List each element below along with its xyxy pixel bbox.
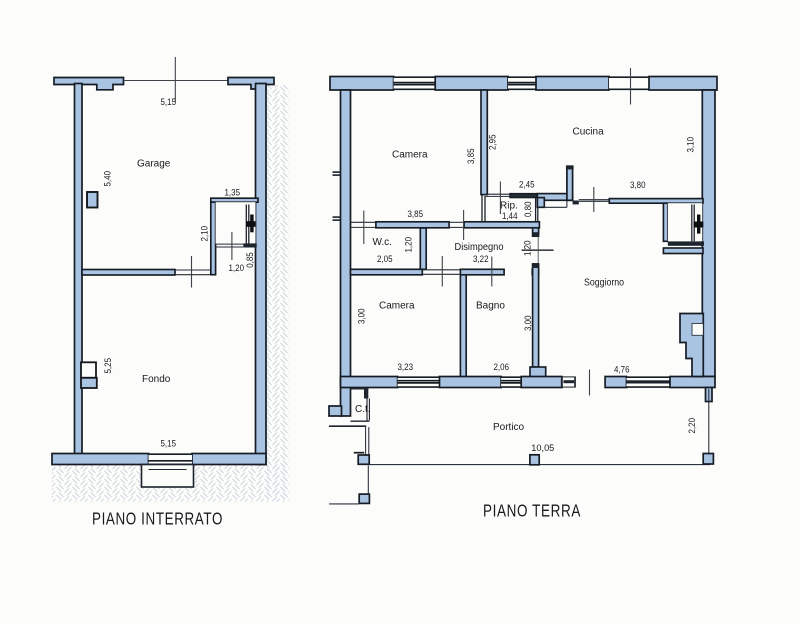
svg-text:2,95: 2,95 <box>488 135 499 151</box>
svg-text:2,10: 2,10 <box>200 226 211 242</box>
svg-text:3,00: 3,00 <box>357 309 368 325</box>
svg-text:PIANO INTERRATO: PIANO INTERRATO <box>92 509 223 529</box>
svg-text:Camera: Camera <box>379 301 415 312</box>
svg-text:5,15: 5,15 <box>161 439 177 450</box>
svg-text:5,15: 5,15 <box>161 97 177 108</box>
svg-text:3,10: 3,10 <box>686 137 697 153</box>
svg-text:Camera: Camera <box>392 150 428 161</box>
svg-text:1,20: 1,20 <box>229 263 245 274</box>
svg-text:Cucina: Cucina <box>573 127 605 138</box>
svg-text:1,20: 1,20 <box>523 241 534 257</box>
svg-text:Disimpegno: Disimpegno <box>455 242 504 253</box>
svg-text:1,35: 1,35 <box>225 188 241 199</box>
svg-text:2,06: 2,06 <box>494 362 510 373</box>
svg-text:0,85: 0,85 <box>245 252 256 268</box>
svg-text:C.t.: C.t. <box>355 404 371 415</box>
svg-text:4,76: 4,76 <box>614 364 630 375</box>
svg-text:5,25: 5,25 <box>103 358 114 374</box>
svg-text:Soggiorno: Soggiorno <box>584 278 624 289</box>
svg-text:2,20: 2,20 <box>687 418 698 434</box>
svg-text:2,05: 2,05 <box>377 254 393 265</box>
svg-text:3,00: 3,00 <box>523 316 534 332</box>
svg-text:5,40: 5,40 <box>103 171 114 187</box>
svg-text:1,20: 1,20 <box>404 237 415 253</box>
svg-text:Fondo: Fondo <box>142 374 171 385</box>
svg-text:1,44: 1,44 <box>502 211 518 222</box>
svg-text:3,85: 3,85 <box>466 149 477 165</box>
svg-text:3,80: 3,80 <box>630 180 646 191</box>
svg-text:3,23: 3,23 <box>398 362 414 373</box>
svg-text:Portico: Portico <box>493 422 525 433</box>
svg-text:PIANO TERRA: PIANO TERRA <box>483 501 581 521</box>
svg-text:3,22: 3,22 <box>473 254 489 265</box>
svg-text:3,85: 3,85 <box>408 209 424 220</box>
svg-text:Garage: Garage <box>137 159 171 170</box>
svg-text:0,80: 0,80 <box>523 202 534 218</box>
svg-text:Bagno: Bagno <box>476 300 505 311</box>
svg-text:W.c.: W.c. <box>373 237 392 248</box>
svg-text:10,05: 10,05 <box>531 443 554 454</box>
svg-text:2,45: 2,45 <box>519 180 535 191</box>
